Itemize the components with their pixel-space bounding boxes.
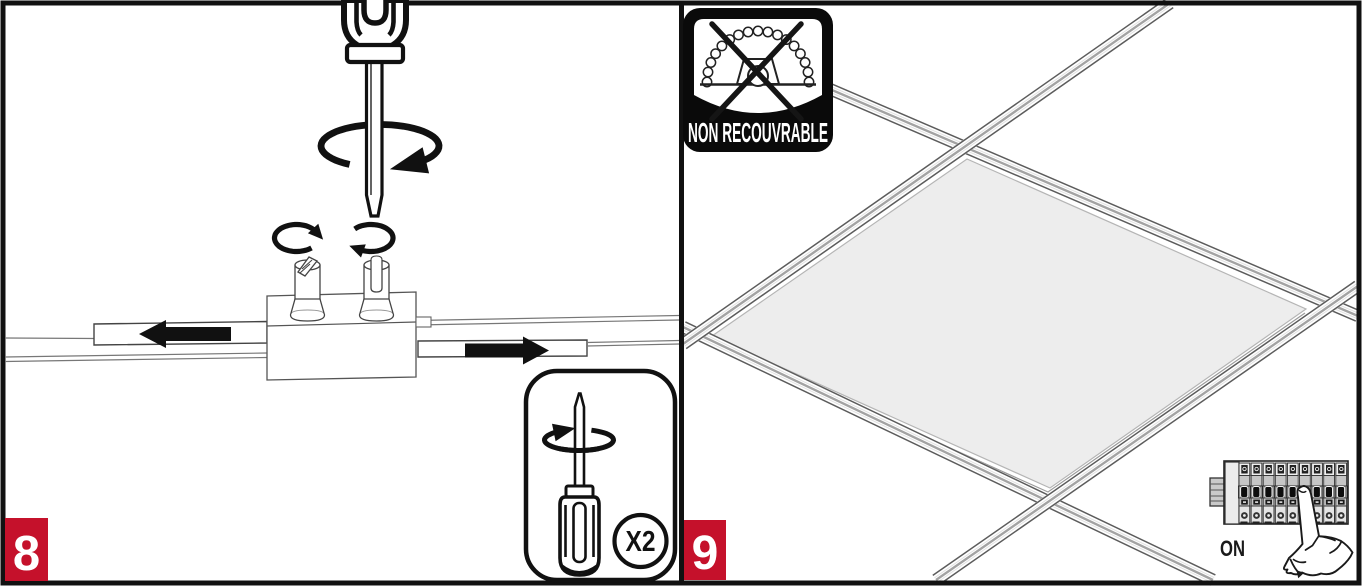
svg-text:9: 9 — [692, 527, 719, 580]
svg-text:X2: X2 — [626, 526, 656, 558]
svg-text:8: 8 — [13, 527, 40, 581]
svg-text:NON RECOUVRABLE: NON RECOUVRABLE — [688, 117, 828, 148]
svg-text:ON: ON — [1220, 536, 1245, 561]
